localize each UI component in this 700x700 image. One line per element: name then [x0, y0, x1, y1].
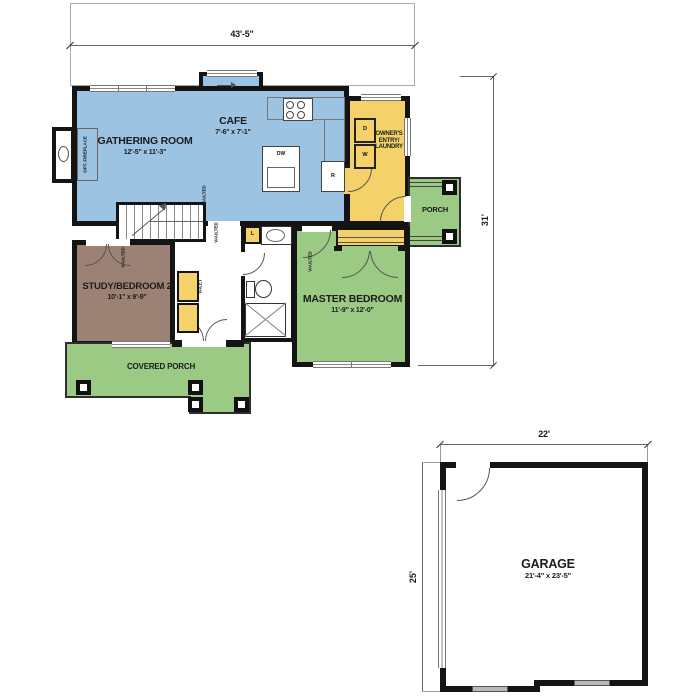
porch-post [234, 397, 249, 412]
room-size: 10'-1" x 9'-9" [78, 294, 176, 302]
window-mullion [351, 361, 352, 368]
window-study [112, 341, 170, 348]
vaulted-label-master: VAULTED [309, 247, 318, 277]
dim-tick [490, 362, 497, 369]
closet-valet-lower [177, 303, 199, 333]
vaulted-label-study: VAULTED [122, 243, 131, 273]
room-name: GARAGE [495, 557, 601, 571]
door-arc-study-left [63, 222, 107, 266]
window-mullion [118, 85, 119, 92]
label-master-bedroom: MASTER BEDROOM 11'-9" x 12'-0" [300, 294, 405, 315]
dim-line-garage-top [440, 444, 648, 445]
dim-ext [422, 691, 440, 692]
stove-burner [297, 101, 305, 109]
island-sink [267, 167, 295, 188]
room-name: CAFE [203, 116, 263, 128]
dishwasher-label: DW [272, 151, 290, 157]
label-owners-entry: OWNER'S ENTRY/ LAUNDRY [366, 131, 412, 151]
label-garage: GARAGE 21'-4" x 23'-5" [495, 557, 601, 580]
dim-ext [440, 444, 441, 462]
room-name: GATHERING ROOM [95, 136, 195, 148]
dim-label-overall-depth: 31' [481, 205, 491, 235]
porch-deck-line [410, 236, 443, 241]
dim-label-garage-width: 22' [519, 429, 569, 439]
dim-line-top [70, 45, 415, 46]
room-size: 7'-6" x 7'-1" [203, 129, 263, 137]
vaulted-label-cafe: VAULTED [203, 181, 212, 211]
dim-ext [418, 365, 494, 366]
stove-burner [297, 111, 305, 119]
dim-line-garage-left [422, 462, 423, 692]
dim-line-right [493, 76, 494, 365]
dim-ext [460, 76, 494, 77]
window-cafe [207, 70, 257, 77]
door-gap-front [182, 340, 226, 347]
room-name: MASTER BEDROOM [300, 294, 405, 306]
fireplace-glyph [58, 146, 69, 162]
window-master [313, 361, 391, 368]
porch-post [188, 397, 203, 412]
porch-deck-line [410, 182, 443, 187]
dim-label-overall-width: 43'-5" [192, 29, 292, 39]
porch-post [442, 229, 457, 244]
vaulted-label-hall: VAULTED [215, 218, 224, 248]
window-mullion [146, 85, 147, 92]
window-garage [438, 490, 446, 668]
closet-valet-upper [177, 271, 199, 302]
window-arrow [217, 85, 231, 86]
label-porch: PORCH [412, 206, 458, 214]
fixture-toilet-bowl [255, 280, 272, 298]
window-owners-entry [361, 94, 401, 101]
fixture-toilet-tank [246, 281, 255, 298]
stove-burner [286, 101, 294, 109]
garage-door-bar [574, 680, 610, 686]
room-size: 21'-4" x 23'-5" [495, 572, 601, 580]
garage-wall-jog [534, 680, 540, 692]
door-gap-garage [456, 462, 490, 468]
floor-plan: 43'-5" 31' [0, 0, 700, 700]
closet-master [336, 228, 406, 247]
door-gap-closet-master [342, 246, 398, 251]
garage-door-bar [472, 686, 508, 692]
stove-burner [286, 111, 294, 119]
valet-label: VALET [199, 272, 208, 302]
dim-ext [647, 444, 648, 462]
porch-post [442, 180, 457, 195]
room-size: 11'-9" x 12'-0" [300, 307, 405, 315]
fixture-sink-basin [266, 229, 285, 242]
washer-label: W [354, 152, 376, 158]
dim-label-garage-depth: 25' [409, 562, 419, 592]
label-study-bedroom2: STUDY/BEDROOM 2 10'-1" x 9'-9" [78, 282, 176, 301]
label-cafe: CAFE 7'-6" x 7'-1" [203, 116, 263, 137]
porch-post [76, 380, 91, 395]
counter-kitchen-right [324, 119, 345, 162]
label-gathering-room: GATHERING ROOM 12'-5" x 11'-3" [95, 136, 195, 157]
window-arrowhead [231, 82, 236, 88]
porch-post [188, 380, 203, 395]
room-size: 12'-5" x 11'-3" [95, 149, 195, 157]
room-name: STUDY/BEDROOM 2 [78, 282, 176, 293]
opt-fireplace-label: OPT. FIREPLACE [84, 129, 93, 181]
label-covered-porch: COVERED PORCH [120, 363, 202, 372]
linen-label: L [244, 231, 261, 237]
dim-ext [422, 462, 440, 463]
refrigerator-label: R [321, 173, 345, 179]
stairs-rail [150, 221, 203, 222]
window-gathering [90, 85, 175, 92]
